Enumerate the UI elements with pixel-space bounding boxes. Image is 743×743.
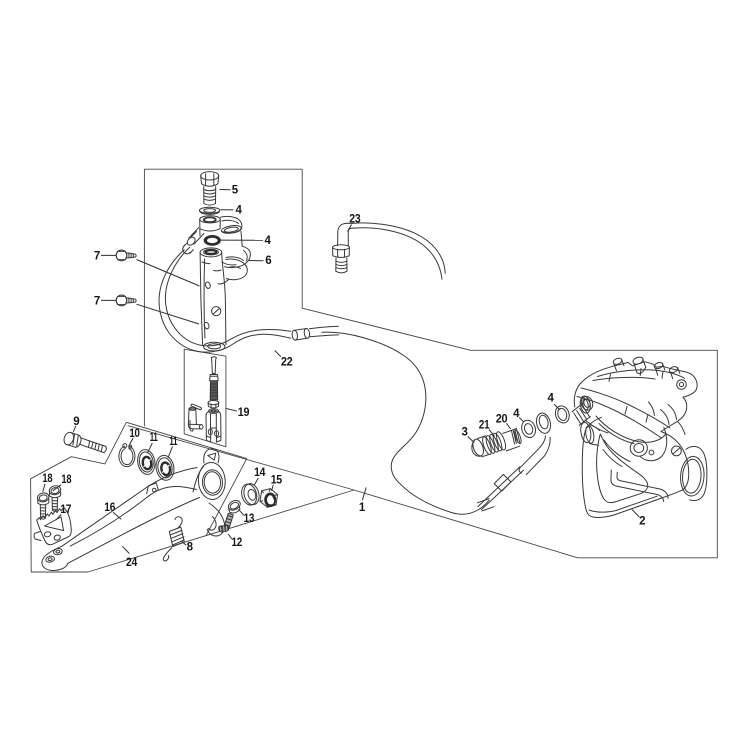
svg-text:16: 16 <box>104 502 115 514</box>
svg-text:4: 4 <box>548 393 555 405</box>
svg-text:21: 21 <box>479 419 490 431</box>
svg-text:2: 2 <box>639 516 645 528</box>
svg-text:1: 1 <box>359 502 366 514</box>
svg-text:19: 19 <box>238 407 249 419</box>
svg-text:7: 7 <box>94 250 100 262</box>
svg-text:22: 22 <box>281 356 293 368</box>
svg-text:5: 5 <box>232 184 239 196</box>
svg-text:4: 4 <box>236 205 243 217</box>
svg-text:13: 13 <box>244 513 255 525</box>
svg-text:10: 10 <box>129 428 139 440</box>
svg-text:15: 15 <box>271 474 283 486</box>
svg-text:3: 3 <box>462 427 468 439</box>
svg-text:20: 20 <box>496 413 508 425</box>
svg-text:11: 11 <box>150 432 159 444</box>
svg-text:7: 7 <box>94 295 100 307</box>
svg-text:24: 24 <box>126 557 138 569</box>
svg-text:4: 4 <box>265 235 272 247</box>
svg-text:6: 6 <box>265 255 271 267</box>
svg-text:11: 11 <box>169 436 178 448</box>
svg-text:4: 4 <box>513 408 520 420</box>
svg-text:14: 14 <box>254 467 266 479</box>
svg-text:18: 18 <box>61 474 72 486</box>
svg-text:18: 18 <box>42 473 53 485</box>
svg-text:8: 8 <box>187 541 194 553</box>
svg-text:9: 9 <box>73 416 79 428</box>
svg-text:12: 12 <box>232 537 243 549</box>
